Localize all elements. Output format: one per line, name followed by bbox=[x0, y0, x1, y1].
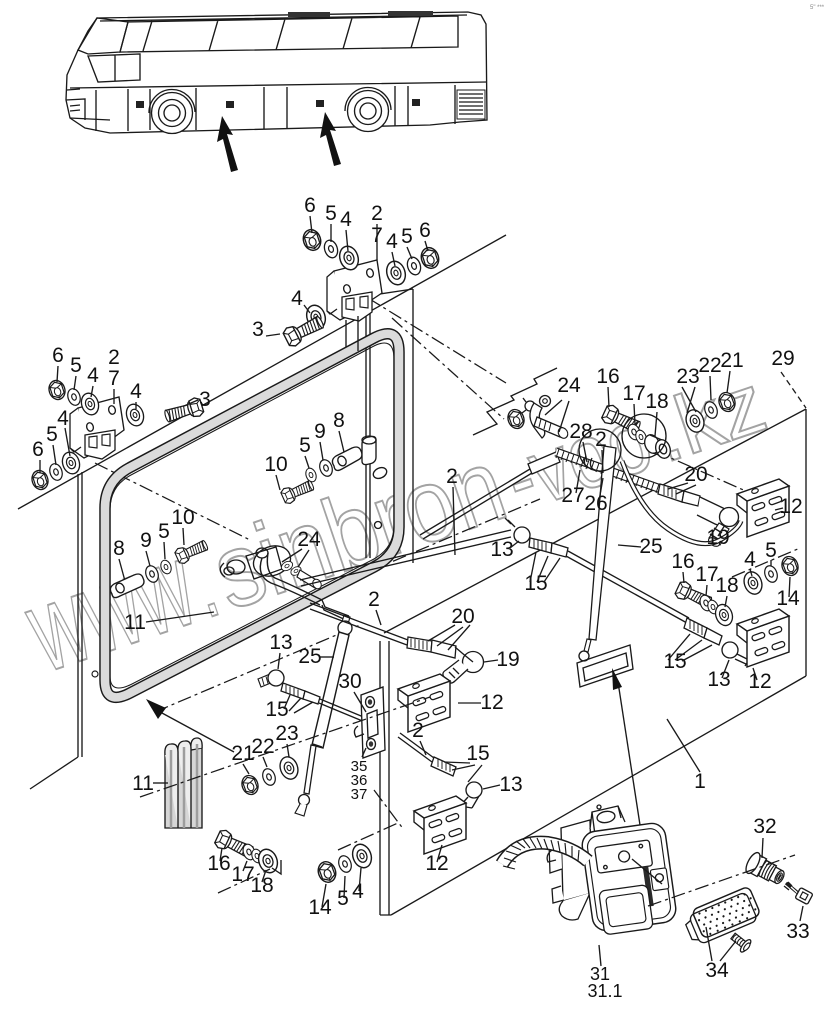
svg-text:24: 24 bbox=[297, 528, 321, 551]
svg-text:13: 13 bbox=[707, 668, 730, 691]
svg-text:5: 5 bbox=[46, 423, 58, 446]
svg-text:2: 2 bbox=[446, 465, 458, 488]
svg-text:18: 18 bbox=[250, 874, 273, 897]
svg-text:29: 29 bbox=[771, 347, 794, 370]
svg-text:17: 17 bbox=[622, 382, 645, 405]
svg-text:11: 11 bbox=[124, 611, 146, 634]
svg-text:20: 20 bbox=[451, 605, 474, 628]
svg-text:34: 34 bbox=[705, 959, 729, 982]
svg-text:14: 14 bbox=[308, 896, 332, 919]
svg-text:12: 12 bbox=[748, 670, 771, 693]
svg-text:5: 5 bbox=[765, 539, 777, 562]
svg-text:31.1: 31.1 bbox=[587, 981, 622, 1001]
svg-text:16: 16 bbox=[596, 365, 619, 388]
svg-text:10: 10 bbox=[264, 453, 287, 476]
svg-text:26: 26 bbox=[584, 492, 607, 515]
svg-text:33: 33 bbox=[786, 920, 809, 943]
svg-text:14: 14 bbox=[776, 587, 800, 610]
svg-text:5" ***: 5" *** bbox=[810, 5, 825, 11]
svg-text:23: 23 bbox=[275, 722, 298, 745]
svg-text:13: 13 bbox=[269, 631, 292, 654]
svg-text:4: 4 bbox=[291, 287, 303, 310]
svg-text:12: 12 bbox=[480, 691, 503, 714]
svg-text:28: 28 bbox=[569, 420, 592, 443]
svg-text:2: 2 bbox=[371, 202, 383, 225]
svg-text:4: 4 bbox=[87, 364, 99, 387]
svg-text:6: 6 bbox=[52, 344, 64, 367]
svg-text:8: 8 bbox=[333, 409, 345, 432]
svg-text:2: 2 bbox=[595, 428, 607, 451]
svg-text:7: 7 bbox=[108, 367, 120, 390]
svg-text:18: 18 bbox=[715, 574, 738, 597]
svg-text:32: 32 bbox=[753, 815, 776, 838]
svg-text:6: 6 bbox=[32, 438, 44, 461]
svg-text:2: 2 bbox=[412, 719, 424, 742]
svg-text:37: 37 bbox=[351, 786, 368, 803]
svg-text:16: 16 bbox=[207, 852, 230, 875]
svg-text:21: 21 bbox=[720, 349, 743, 372]
svg-text:12: 12 bbox=[779, 495, 802, 518]
svg-text:15: 15 bbox=[524, 572, 547, 595]
svg-text:10: 10 bbox=[171, 506, 194, 529]
svg-text:5: 5 bbox=[70, 354, 82, 377]
svg-text:3: 3 bbox=[199, 388, 211, 411]
svg-text:2: 2 bbox=[368, 588, 380, 611]
svg-text:5: 5 bbox=[401, 225, 413, 248]
svg-text:18: 18 bbox=[645, 390, 668, 413]
svg-text:25: 25 bbox=[639, 535, 662, 558]
svg-text:13: 13 bbox=[499, 773, 522, 796]
svg-text:6: 6 bbox=[419, 219, 431, 242]
svg-text:6: 6 bbox=[304, 194, 316, 217]
svg-text:30: 30 bbox=[338, 670, 361, 693]
svg-text:11: 11 bbox=[132, 772, 154, 795]
svg-text:5: 5 bbox=[337, 887, 349, 910]
svg-text:22: 22 bbox=[698, 354, 721, 377]
svg-text:19: 19 bbox=[496, 648, 519, 671]
svg-text:9: 9 bbox=[140, 529, 152, 552]
svg-text:9: 9 bbox=[314, 420, 326, 443]
svg-text:15: 15 bbox=[265, 698, 288, 721]
svg-text:16: 16 bbox=[671, 550, 694, 573]
svg-text:3: 3 bbox=[252, 318, 264, 341]
svg-text:4: 4 bbox=[130, 380, 142, 403]
svg-text:19: 19 bbox=[706, 526, 729, 549]
svg-text:23: 23 bbox=[676, 365, 699, 388]
svg-text:1: 1 bbox=[694, 770, 706, 793]
svg-text:24: 24 bbox=[557, 374, 581, 397]
svg-text:5: 5 bbox=[325, 202, 337, 225]
svg-text:4: 4 bbox=[386, 230, 398, 253]
svg-text:4: 4 bbox=[744, 548, 756, 571]
svg-text:4: 4 bbox=[57, 407, 69, 430]
svg-text:5: 5 bbox=[299, 434, 311, 457]
svg-text:4: 4 bbox=[352, 880, 364, 903]
svg-text:13: 13 bbox=[490, 538, 513, 561]
svg-text:25: 25 bbox=[298, 645, 321, 668]
svg-text:8: 8 bbox=[113, 537, 125, 560]
svg-text:4: 4 bbox=[340, 208, 352, 231]
svg-text:2: 2 bbox=[108, 346, 120, 369]
svg-text:27: 27 bbox=[561, 484, 584, 507]
svg-text:15: 15 bbox=[466, 742, 489, 765]
svg-text:5: 5 bbox=[158, 520, 170, 543]
svg-text:12: 12 bbox=[425, 852, 448, 875]
